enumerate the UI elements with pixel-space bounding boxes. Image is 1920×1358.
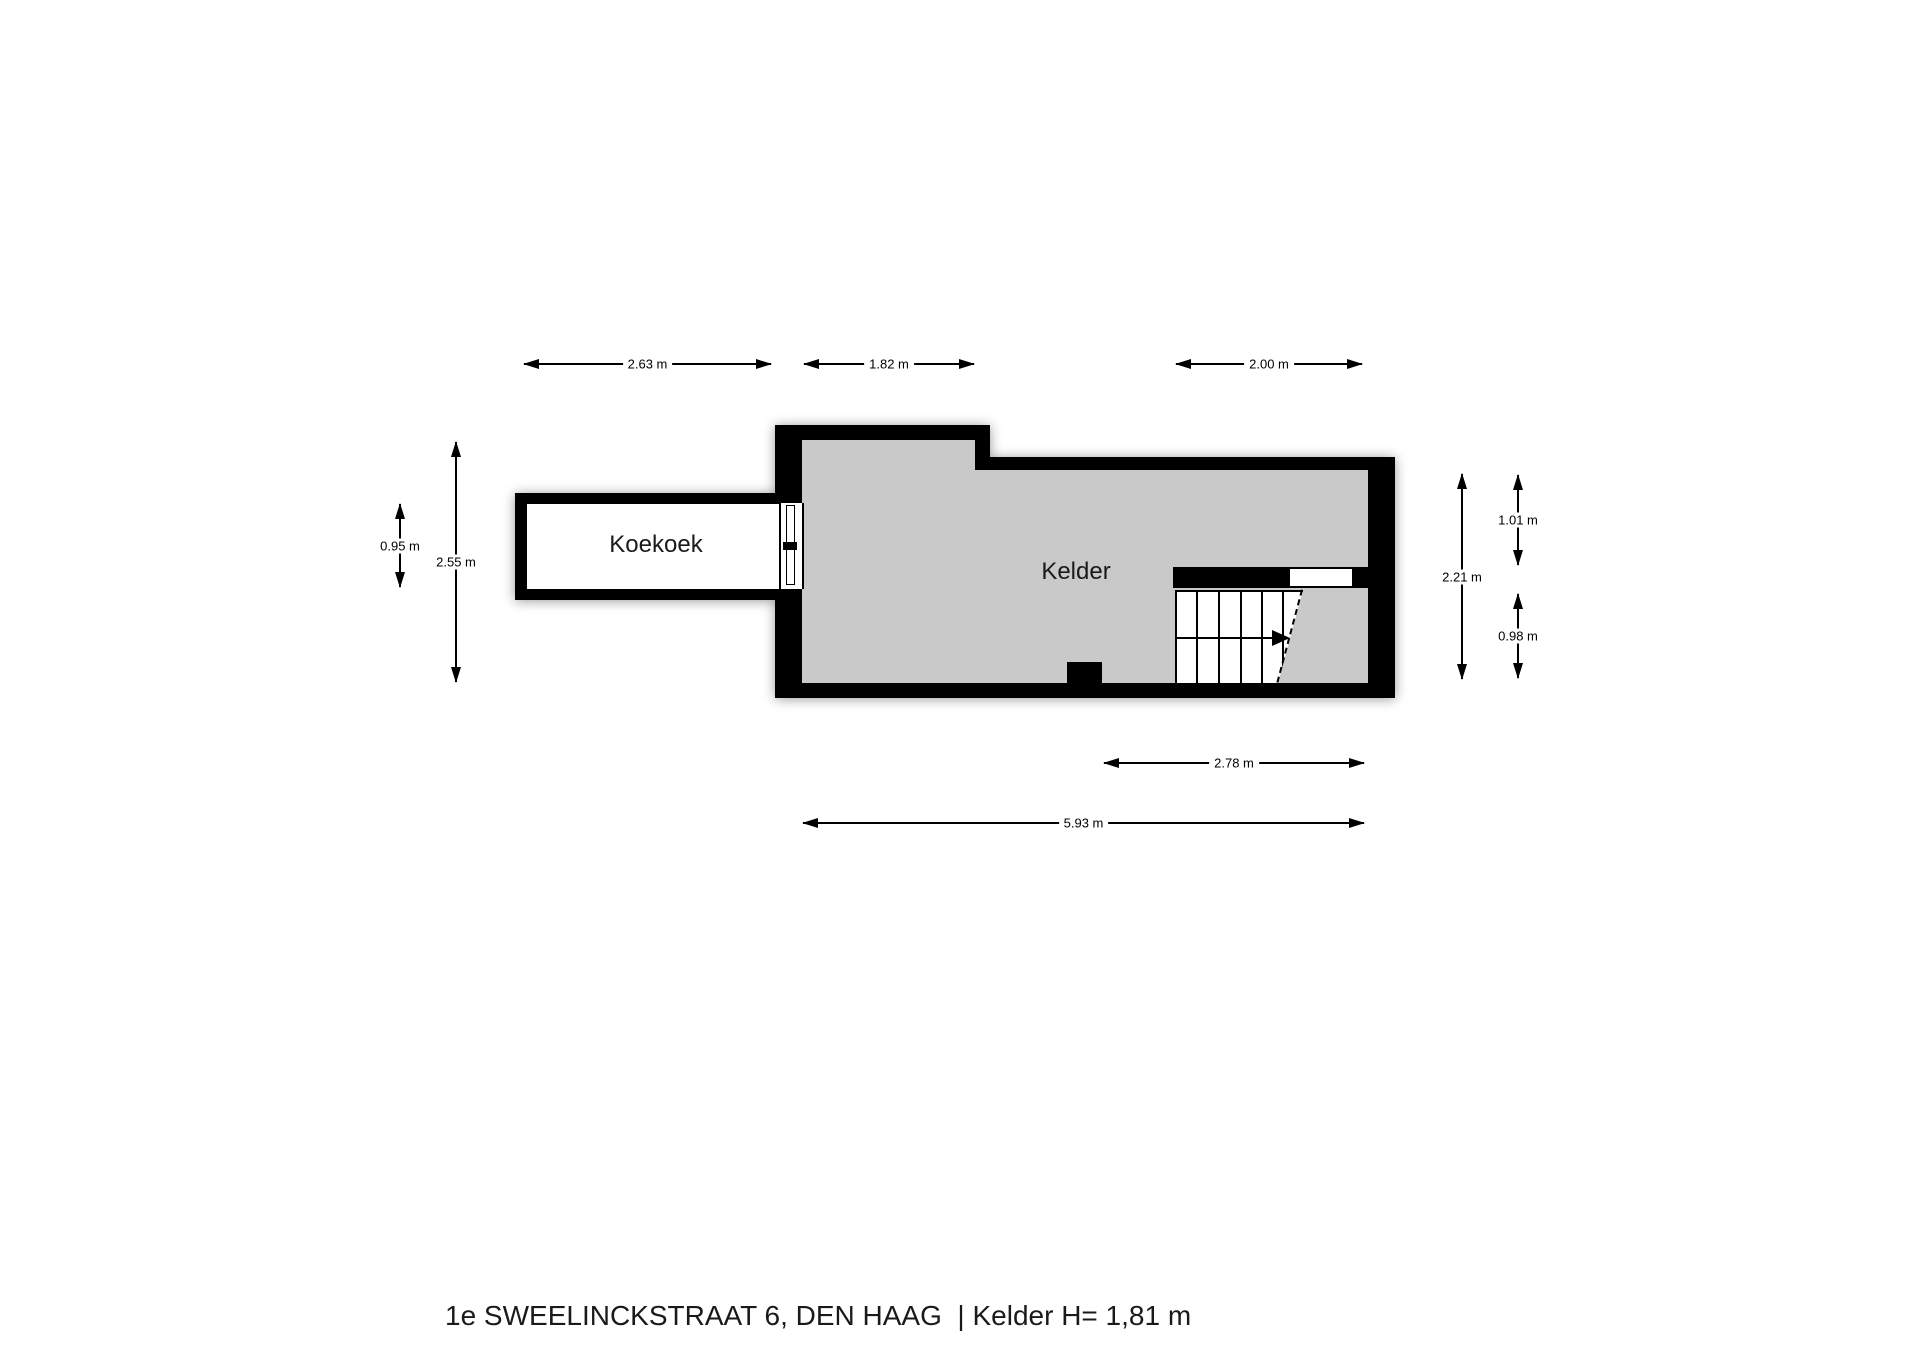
dimension-value: 2.78 m [1209, 756, 1259, 771]
kelder-room-label: Kelder [1041, 558, 1110, 586]
dimension-value: 1.82 m [864, 357, 914, 372]
dimension-nook-width: 1.82 m [803, 358, 975, 370]
dimension-kelder-height: 2.21 m [1456, 473, 1468, 680]
dimension-value: 5.93 m [1059, 816, 1109, 831]
window-mullion [783, 542, 797, 550]
kelder-top-wall-upper [775, 425, 990, 440]
window-icon [779, 503, 804, 589]
kelder-step-wall [975, 425, 990, 470]
plan-title: 1e SWEELINCKSTRAAT 6, DEN HAAG | Kelder … [445, 1300, 1191, 1332]
floorplan-canvas: Koekoek Kelder 2.63 m 1.82 m 2.00 m 2.78… [0, 0, 1920, 1358]
koekoek-room-label: Koekoek [609, 531, 702, 559]
door-opening [1290, 567, 1352, 588]
stairs [1175, 590, 1307, 683]
dimension-stairwell-width: 2.00 m [1175, 358, 1363, 370]
arrow-down-icon [1457, 664, 1467, 680]
dimension-total-height: 2.55 m [450, 441, 462, 683]
bottom-wall-stub [1067, 662, 1102, 683]
dimension-lower-right-height: 0.98 m [1512, 593, 1524, 679]
kelder-bottom-wall [775, 683, 1395, 698]
arrow-up-icon [1513, 474, 1523, 490]
arrow-up-icon [1457, 473, 1467, 489]
arrow-up-icon [395, 503, 405, 519]
arrow-up-icon [1513, 593, 1523, 609]
arrow-down-icon [1513, 550, 1523, 566]
arrow-right-icon [1349, 818, 1365, 828]
arrow-right-icon [959, 359, 975, 369]
wall-piece-right-of-opening [1352, 567, 1368, 588]
kelder-top-wall-lower [990, 457, 1395, 470]
arrow-right-icon [1347, 359, 1363, 369]
dimension-value: 2.63 m [623, 357, 673, 372]
dimension-value: 1.01 m [1493, 513, 1543, 528]
dimension-koekoek-height: 0.95 m [394, 503, 406, 588]
dimension-kelder-width: 5.93 m [802, 817, 1365, 829]
dimension-upper-right-height: 1.01 m [1512, 474, 1524, 566]
arrow-right-icon [756, 359, 772, 369]
stair-north-wall [1173, 567, 1290, 588]
arrow-left-icon [523, 359, 539, 369]
arrow-left-icon [1175, 359, 1191, 369]
dimension-stair-span-width: 2.78 m [1103, 757, 1365, 769]
arrow-left-icon [802, 818, 818, 828]
arrow-left-icon [1103, 758, 1119, 768]
arrow-down-icon [395, 572, 405, 588]
dimension-value: 2.00 m [1244, 357, 1294, 372]
koekoek-bottom-wall [515, 589, 775, 600]
stair-walk-line [1175, 637, 1272, 639]
dimension-value: 0.95 m [375, 538, 425, 553]
dimension-value: 2.21 m [1437, 569, 1487, 584]
stair-top-edge [1175, 590, 1303, 592]
arrow-left-icon [803, 359, 819, 369]
koekoek-left-wall [515, 493, 527, 600]
arrow-down-icon [1513, 663, 1523, 679]
dimension-value: 0.98 m [1493, 629, 1543, 644]
kelder-right-wall [1368, 457, 1395, 698]
dimension-value: 2.55 m [431, 555, 481, 570]
stair-direction-arrow-icon [1272, 630, 1290, 646]
arrow-right-icon [1349, 758, 1365, 768]
koekoek-top-wall [515, 493, 775, 504]
dimension-koekoek-width: 2.63 m [523, 358, 772, 370]
arrow-up-icon [451, 441, 461, 457]
building-outline [0, 0, 1920, 1358]
arrow-down-icon [451, 667, 461, 683]
